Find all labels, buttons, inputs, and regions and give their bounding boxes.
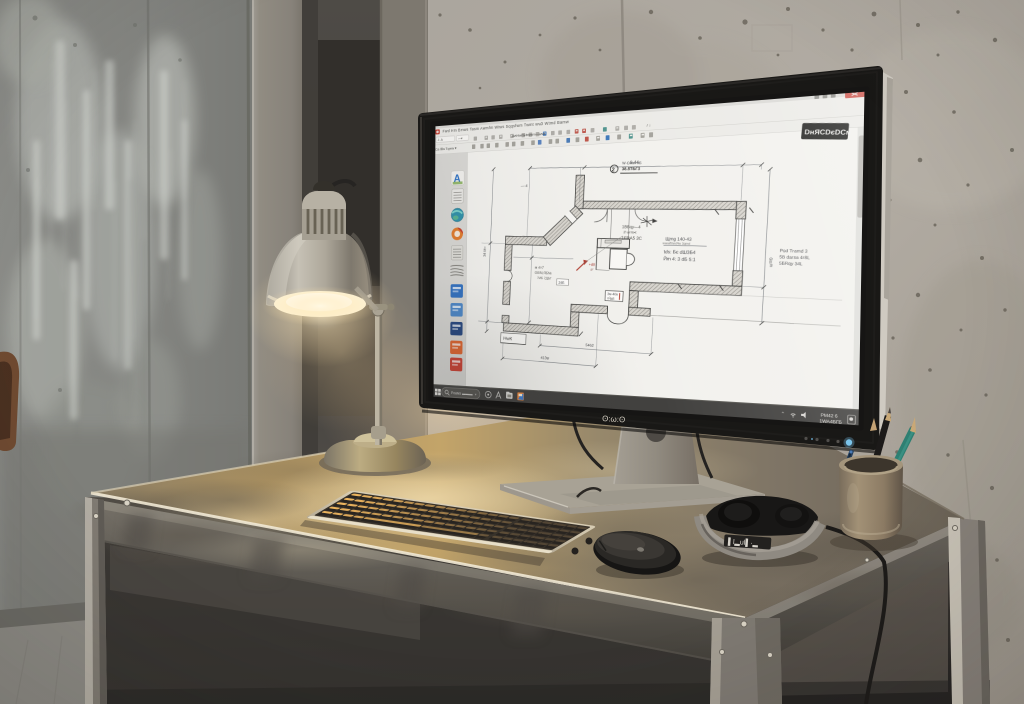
svg-text:ʘ:ω:ʘ: ʘ:ω:ʘ — [602, 414, 626, 424]
